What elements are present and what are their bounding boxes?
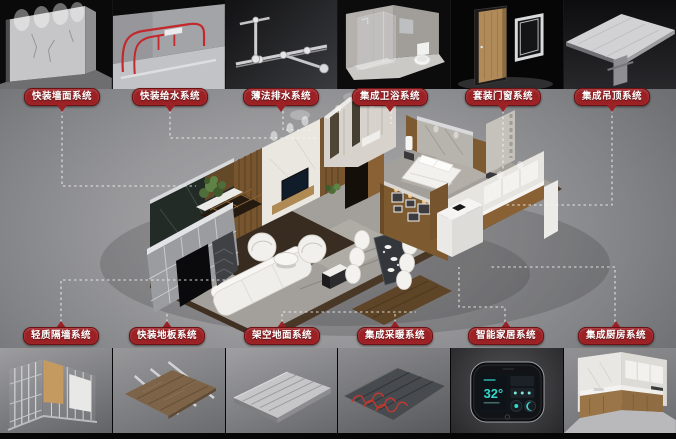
thumb-raised-floor-render	[226, 348, 338, 433]
partition-wall-icon	[0, 348, 112, 433]
badge-text: 薄法排水系统	[243, 88, 319, 106]
label-raised-floor-system: 架空地面系统	[244, 321, 320, 345]
panel-temperature: 32°	[484, 386, 503, 401]
label-floor-panel-system: 快装地板系统	[129, 321, 205, 345]
thumb-heating-render	[338, 348, 450, 433]
label-bathroom-system: 集成卫浴系统	[352, 88, 428, 112]
pointer-down-icon	[385, 105, 395, 112]
top-thumbnail-strip	[0, 0, 676, 89]
badge-text: 轻质隔墙系统	[23, 327, 99, 345]
badge-text: 集成采暖系统	[357, 327, 433, 345]
wall-surface-icon	[0, 0, 112, 89]
badge-text: 快装墙面系统	[24, 88, 100, 106]
pointer-down-icon	[57, 105, 67, 112]
thumb-drainage-render	[226, 0, 338, 89]
label-smart-home-system: 智能家居系统	[468, 321, 544, 345]
apartment-render-area	[0, 89, 676, 348]
door-window-icon	[451, 0, 563, 89]
thumb-smart-home-render: 32°	[451, 348, 563, 433]
thumb-kitchen-render	[564, 348, 676, 433]
ceiling-icon	[564, 0, 676, 89]
pointer-down-icon	[276, 105, 286, 112]
thumb-door-window-render	[451, 0, 563, 89]
thumb-floor-panel-render	[113, 348, 225, 433]
label-kitchen-system: 集成厨房系统	[578, 321, 654, 345]
water-supply-icon	[113, 0, 225, 89]
badge-text: 智能家居系统	[468, 327, 544, 345]
label-door-window-system: 套装门窗系统	[465, 88, 541, 112]
kitchen-icon	[564, 348, 676, 433]
raised-floor-icon	[226, 348, 338, 433]
bottom-thumbnail-strip: 32°	[0, 348, 676, 439]
smart-home-icon: 32°	[451, 348, 563, 433]
infographic-canvas: 32°	[0, 0, 676, 439]
thumb-water-supply-render	[113, 0, 225, 89]
badge-text: 集成厨房系统	[578, 327, 654, 345]
floor-panel-icon	[113, 348, 225, 433]
heating-icon	[338, 348, 450, 433]
bathroom-icon	[338, 0, 450, 89]
label-ceiling-system: 集成吊顶系统	[574, 88, 650, 112]
pointer-down-icon	[165, 105, 175, 112]
badge-text: 套装门窗系统	[465, 88, 541, 106]
pointer-down-icon	[498, 105, 508, 112]
badge-text: 集成吊顶系统	[574, 88, 650, 106]
label-drainage-system: 薄法排水系统	[243, 88, 319, 112]
thumb-ceiling-render	[564, 0, 676, 89]
apartment-isometric-render	[0, 89, 676, 348]
badge-text: 快装地板系统	[129, 327, 205, 345]
pointer-down-icon	[607, 105, 617, 112]
label-water-supply-system: 快装给水系统	[132, 88, 208, 112]
label-heating-system: 集成采暖系统	[357, 321, 433, 345]
thumb-wall-surface-render	[0, 0, 112, 89]
badge-text: 架空地面系统	[244, 327, 320, 345]
thumb-partition-wall-render	[0, 348, 112, 433]
label-wall-surface-system: 快装墙面系统	[24, 88, 100, 112]
badge-text: 快装给水系统	[132, 88, 208, 106]
badge-text: 集成卫浴系统	[352, 88, 428, 106]
thumb-bathroom-render	[338, 0, 450, 89]
drainage-icon	[226, 0, 338, 89]
label-partition-wall-system: 轻质隔墙系统	[23, 321, 99, 345]
